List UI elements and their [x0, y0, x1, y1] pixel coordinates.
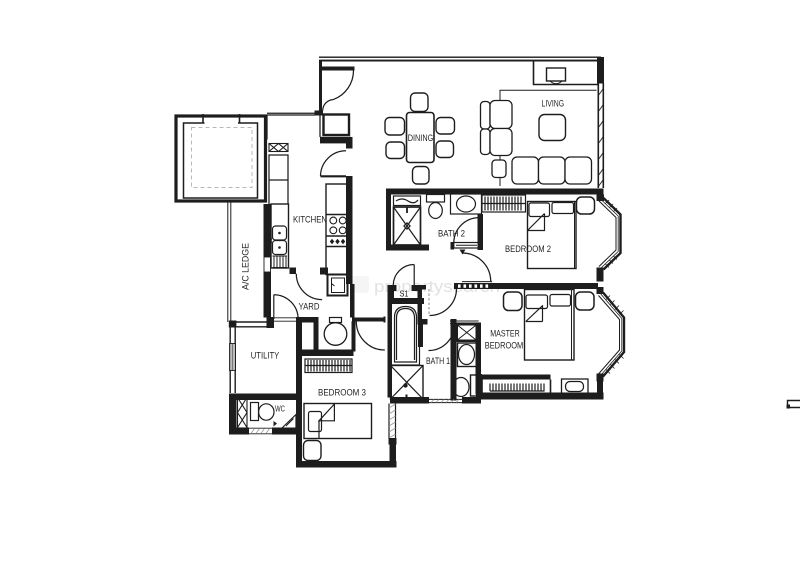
svg-text:MASTER: MASTER	[490, 329, 520, 339]
svg-text:KITCHEN: KITCHEN	[293, 215, 327, 225]
svg-text:LIVING: LIVING	[542, 99, 565, 109]
svg-text:DINING: DINING	[408, 133, 434, 143]
svg-text:UTILITY: UTILITY	[251, 351, 280, 361]
svg-text:A/C LEDGE: A/C LEDGE	[241, 243, 251, 290]
svg-text:BEDROOM: BEDROOM	[485, 341, 524, 351]
svg-text:BATH 2: BATH 2	[438, 229, 465, 239]
svg-text:BEDROOM 3: BEDROOM 3	[318, 388, 366, 399]
svg-text:YARD: YARD	[299, 302, 320, 312]
svg-text:BEDROOM 2: BEDROOM 2	[505, 244, 551, 254]
svg-text:S1: S1	[400, 289, 409, 299]
svg-text:BATH 1: BATH 1	[426, 356, 450, 366]
svg-text:WC: WC	[275, 405, 285, 414]
